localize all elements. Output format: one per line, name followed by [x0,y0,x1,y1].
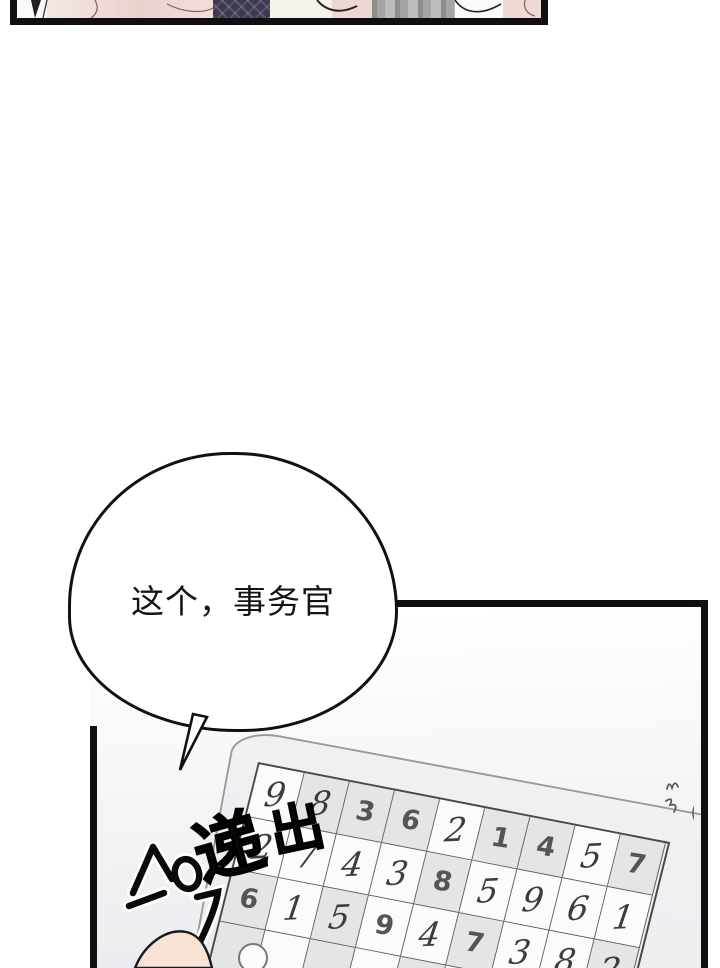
speech-bubble-tail [170,700,220,780]
speech-bubble-text: 这个，事务官 [131,575,335,623]
comic-page: 983621457274385961615947382 递 出 [0,0,720,968]
bottom-panel-left-border [90,726,97,968]
fingertip-icon [135,931,212,968]
top-panel-fragment [10,0,548,25]
panel1-lineart [17,0,541,18]
speech-bubble: 这个，事务官 [68,452,398,732]
